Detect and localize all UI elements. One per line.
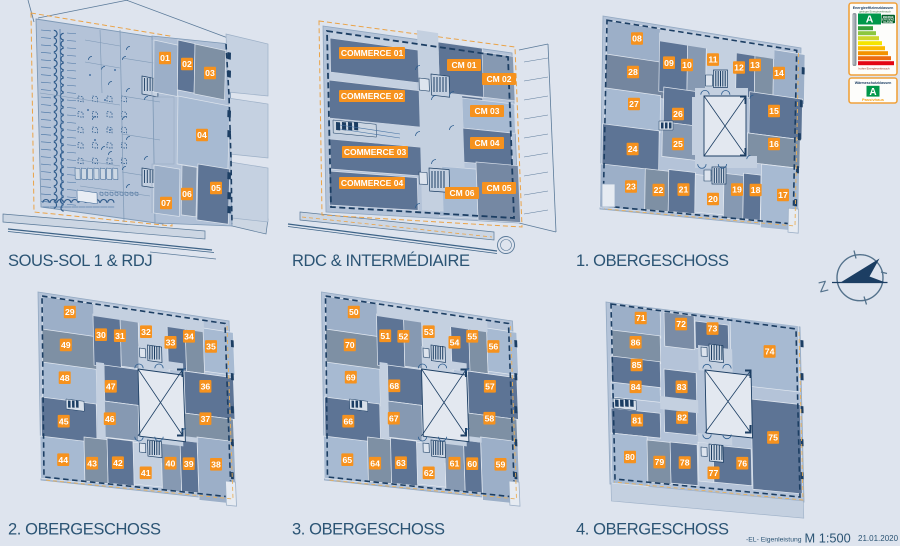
svg-text:71: 71: [636, 313, 646, 323]
svg-text:46: 46: [105, 414, 115, 424]
svg-text:15: 15: [769, 106, 779, 116]
svg-text:36: 36: [201, 381, 211, 391]
svg-text:4. OBERGESCHOSS: 4. OBERGESCHOSS: [576, 521, 729, 539]
svg-text:10: 10: [682, 60, 692, 70]
svg-text:CM 01: CM 01: [451, 60, 476, 70]
svg-text:33: 33: [166, 337, 176, 347]
svg-text:18: 18: [751, 185, 761, 195]
svg-text:CM 02: CM 02: [486, 74, 511, 84]
svg-text:82: 82: [677, 413, 687, 423]
svg-text:A: A: [866, 14, 874, 26]
svg-text:04: 04: [197, 130, 207, 140]
svg-text:57: 57: [485, 381, 495, 391]
svg-text:86: 86: [631, 337, 641, 347]
svg-text:hoher Energieverbrauch: hoher Energieverbrauch: [858, 67, 889, 71]
svg-text:01: 01: [160, 53, 170, 63]
svg-text:64: 64: [370, 458, 380, 468]
svg-text:58: 58: [485, 413, 495, 423]
svg-text:03: 03: [205, 68, 215, 78]
svg-text:54: 54: [450, 337, 460, 347]
svg-text:2. OBERGESCHOSS: 2. OBERGESCHOSS: [8, 521, 161, 539]
svg-text:73: 73: [708, 324, 718, 334]
svg-text:CM 04: CM 04: [474, 138, 499, 148]
svg-text:COMMERCE 01: COMMERCE 01: [341, 48, 404, 58]
svg-text:17: 17: [778, 190, 788, 200]
svg-text:76: 76: [737, 458, 747, 468]
svg-text:43: 43: [87, 458, 97, 468]
svg-text:08: 08: [632, 34, 642, 44]
svg-text:07: 07: [161, 198, 171, 208]
svg-text:39: 39: [184, 459, 194, 469]
svg-text:25: 25: [673, 139, 683, 149]
svg-text:41: 41: [141, 468, 151, 478]
svg-text:02: 02: [182, 59, 192, 69]
svg-text:3. OBERGESCHOSS: 3. OBERGESCHOSS: [292, 521, 445, 539]
svg-text:79: 79: [655, 457, 665, 467]
svg-text:75: 75: [768, 433, 778, 443]
svg-text:56: 56: [489, 342, 499, 352]
svg-text:42: 42: [113, 458, 123, 468]
svg-text:KLASSE: KLASSE: [883, 21, 893, 24]
svg-text:72: 72: [676, 319, 686, 329]
svg-text:21: 21: [679, 185, 689, 195]
svg-text:59: 59: [496, 459, 506, 469]
svg-text:60: 60: [467, 459, 477, 469]
svg-text:61: 61: [450, 458, 460, 468]
svg-text:66: 66: [343, 416, 353, 426]
svg-text:35: 35: [206, 342, 216, 352]
svg-text:32: 32: [141, 327, 151, 337]
svg-text:22: 22: [654, 185, 664, 195]
svg-text:Wärmeschutzklassen: Wärmeschutzklassen: [855, 81, 892, 85]
svg-text:26: 26: [673, 109, 683, 119]
svg-text:77: 77: [709, 468, 719, 478]
svg-text:45: 45: [59, 416, 69, 426]
svg-text:27: 27: [629, 99, 639, 109]
svg-text:37: 37: [201, 414, 211, 424]
svg-text:13: 13: [750, 60, 760, 70]
svg-text:55: 55: [467, 331, 477, 341]
svg-text:CM 06: CM 06: [449, 188, 474, 198]
svg-text:44: 44: [58, 455, 68, 465]
svg-text:51: 51: [380, 331, 390, 341]
svg-text:-EL- Eigenleistung: -EL- Eigenleistung: [746, 537, 802, 544]
svg-text:Passivhaus: Passivhaus: [862, 97, 885, 102]
svg-text:62: 62: [424, 468, 434, 478]
svg-text:20: 20: [708, 194, 718, 204]
svg-text:78: 78: [680, 458, 690, 468]
svg-text:SOUS-SOL 1 & RDJ: SOUS-SOL 1 & RDJ: [8, 252, 152, 270]
svg-text:M 1:500: M 1:500: [805, 531, 851, 546]
svg-text:A: A: [869, 87, 876, 98]
svg-text:50: 50: [349, 307, 359, 317]
svg-text:29: 29: [65, 307, 75, 317]
svg-text:CM 05: CM 05: [486, 183, 511, 193]
svg-text:COMMERCE 02: COMMERCE 02: [341, 91, 404, 101]
svg-text:80: 80: [625, 452, 635, 462]
svg-text:47: 47: [106, 381, 116, 391]
svg-text:69: 69: [346, 372, 356, 382]
svg-text:40: 40: [166, 458, 176, 468]
svg-text:12: 12: [734, 63, 744, 73]
svg-text:1. OBERGESCHOSS: 1. OBERGESCHOSS: [576, 252, 729, 270]
svg-text:23: 23: [626, 182, 636, 192]
svg-text:05: 05: [211, 183, 221, 193]
svg-text:31: 31: [115, 331, 125, 341]
svg-text:19: 19: [732, 185, 742, 195]
svg-text:21.01.2020: 21.01.2020: [858, 534, 899, 543]
svg-text:16: 16: [769, 139, 779, 149]
svg-text:RDC & INTERMÉDIAIRE: RDC & INTERMÉDIAIRE: [292, 251, 470, 270]
svg-text:06: 06: [182, 189, 192, 199]
svg-text:30: 30: [96, 330, 106, 340]
svg-text:09: 09: [664, 58, 674, 68]
svg-text:49: 49: [61, 340, 71, 350]
svg-text:COMMERCE 03: COMMERCE 03: [344, 147, 407, 157]
svg-text:24: 24: [628, 144, 638, 154]
svg-text:84: 84: [631, 382, 641, 392]
svg-text:74: 74: [765, 347, 775, 357]
svg-text:81: 81: [632, 415, 642, 425]
svg-text:38: 38: [211, 459, 221, 469]
svg-text:83: 83: [677, 382, 687, 392]
svg-text:85: 85: [632, 360, 642, 370]
svg-text:53: 53: [424, 327, 434, 337]
svg-text:CM 03: CM 03: [474, 106, 499, 116]
svg-text:67: 67: [389, 413, 399, 423]
svg-text:COMMERCE 04: COMMERCE 04: [341, 178, 404, 188]
svg-text:14: 14: [774, 68, 784, 78]
svg-text:63: 63: [396, 458, 406, 468]
svg-text:28: 28: [628, 67, 638, 77]
svg-text:34: 34: [184, 331, 194, 341]
svg-text:70: 70: [345, 340, 355, 350]
svg-text:geringer Energieverbrauch: geringer Energieverbrauch: [859, 9, 891, 13]
svg-text:65: 65: [342, 455, 352, 465]
svg-text:48: 48: [60, 373, 70, 383]
svg-text:52: 52: [399, 331, 409, 341]
svg-text:11: 11: [708, 55, 717, 65]
svg-text:68: 68: [389, 381, 399, 391]
